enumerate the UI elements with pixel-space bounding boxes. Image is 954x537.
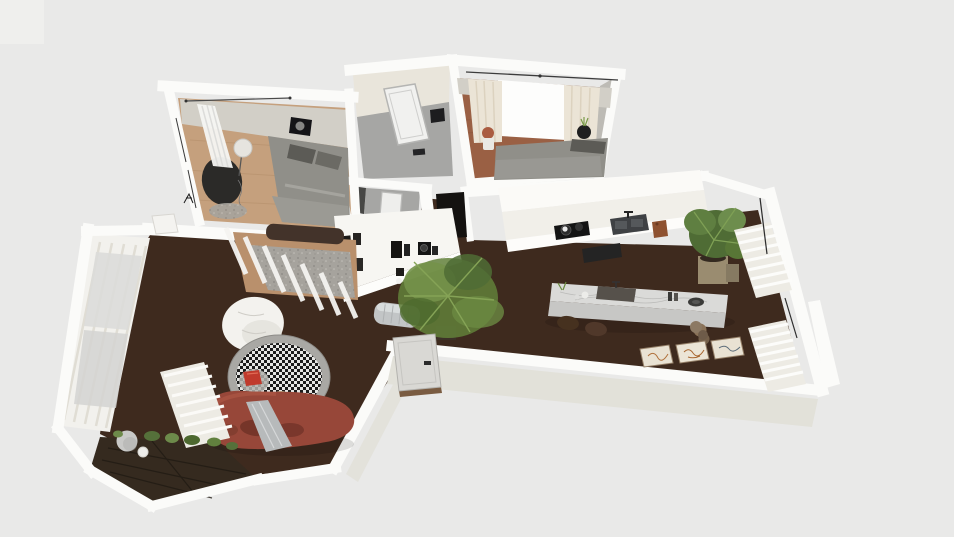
decor-item xyxy=(404,244,410,256)
floor-lamp-shade xyxy=(234,139,252,157)
decor-item xyxy=(396,268,404,276)
red-cushion xyxy=(243,370,262,386)
decor-item xyxy=(432,246,438,255)
board-hole xyxy=(656,223,659,226)
door-leaf-bedroom xyxy=(152,214,178,234)
bright-window xyxy=(498,80,566,140)
pan xyxy=(575,223,583,231)
foliage xyxy=(684,209,716,235)
sphere-shade xyxy=(123,437,137,451)
greenery xyxy=(165,433,179,443)
sink-basin xyxy=(615,221,627,229)
foliage xyxy=(452,296,504,328)
rod-finial xyxy=(289,97,292,100)
pot-lid xyxy=(562,226,567,231)
black-pot xyxy=(577,125,591,139)
greenery xyxy=(207,438,221,447)
bedroom-rug xyxy=(209,203,247,219)
background-artifact xyxy=(0,0,44,44)
greenery xyxy=(144,431,160,441)
greenery xyxy=(184,435,200,445)
speaker-cone xyxy=(421,245,428,252)
dish xyxy=(575,295,580,300)
decor-item xyxy=(356,258,363,271)
floor-item xyxy=(413,148,425,155)
white-pot xyxy=(138,447,148,457)
door-handle xyxy=(424,361,431,365)
small-pot xyxy=(698,330,708,340)
floorplan-svg xyxy=(0,0,954,537)
wall-art-moon xyxy=(296,122,305,131)
bottle xyxy=(668,292,672,301)
dish xyxy=(582,292,589,299)
floorplan-render xyxy=(0,0,954,537)
wall xyxy=(86,230,150,231)
foliage xyxy=(444,254,492,290)
rod-finial xyxy=(185,100,188,103)
wall-radiator xyxy=(430,108,445,123)
decor-item xyxy=(391,241,402,258)
rod-bracket xyxy=(538,74,541,77)
greenery xyxy=(226,442,238,450)
greenery xyxy=(113,431,123,438)
plate-center xyxy=(692,300,700,304)
cutting-board xyxy=(652,220,668,238)
white-planter xyxy=(483,138,494,150)
bottle xyxy=(674,293,678,301)
planter-small xyxy=(726,264,739,282)
entrance-door xyxy=(393,334,442,397)
sink-basin xyxy=(631,219,643,227)
terracotta-pot xyxy=(482,127,494,139)
white-vase xyxy=(396,278,402,284)
